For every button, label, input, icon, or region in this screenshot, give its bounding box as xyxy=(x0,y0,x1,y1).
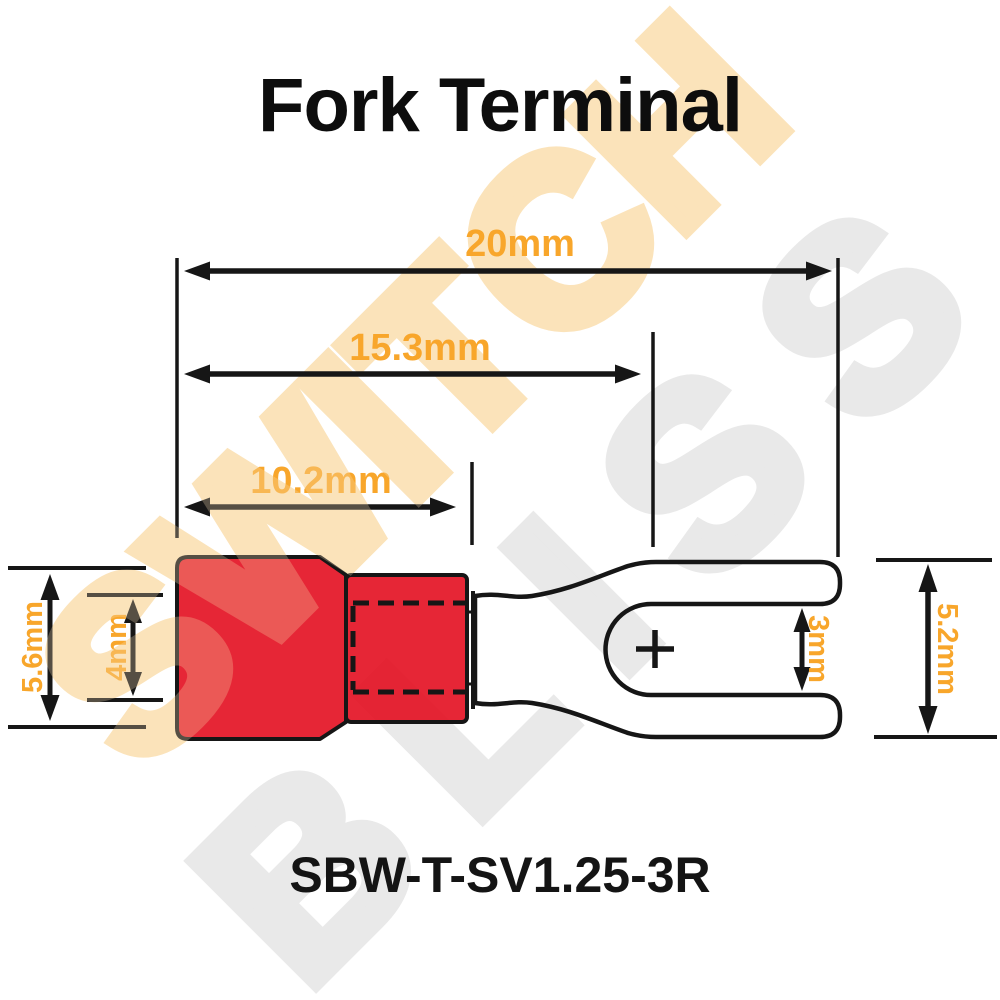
arrowhead-up-icon xyxy=(41,574,60,600)
insulation-sleeve xyxy=(177,557,467,739)
dim-insulation-length: 10.2mm xyxy=(184,460,472,545)
dim-fork-gap-label: 3mm xyxy=(802,615,834,683)
arrowhead-right-icon xyxy=(806,262,832,281)
arrowhead-right-icon xyxy=(430,498,456,517)
fork-blade xyxy=(467,562,840,737)
dim-fork-width-label: 5.2mm xyxy=(931,603,963,695)
dim-insulation-od-label: 5.6mm xyxy=(17,601,49,693)
arrowhead-left-icon xyxy=(184,262,210,281)
arrowhead-down-icon xyxy=(41,695,60,721)
arrowhead-right-icon xyxy=(615,365,641,384)
center-cross-icon xyxy=(636,630,674,668)
dim-wire-entry: 4mm xyxy=(87,595,163,700)
dim-fork-gap: 3mm xyxy=(794,608,834,691)
page-title: Fork Terminal xyxy=(0,62,1000,149)
dim-insulation-length-label: 10.2mm xyxy=(250,460,392,502)
dim-to-fork-notch-label: 15.3mm xyxy=(349,327,491,369)
crimp-barrel xyxy=(346,575,467,722)
dim-wire-entry-label: 4mm xyxy=(101,613,133,681)
arrowhead-down-icon xyxy=(919,706,938,734)
dim-fork-width: 5.2mm xyxy=(874,560,997,737)
arrowhead-left-icon xyxy=(184,498,210,517)
arrowhead-up-icon xyxy=(919,564,938,592)
dim-to-fork-notch: 15.3mm xyxy=(184,327,653,547)
dim-total-length-label: 20mm xyxy=(465,223,575,265)
part-number: SBW-T-SV1.25-3R xyxy=(0,846,1000,904)
insulation-sleeve-body xyxy=(177,557,346,739)
fork-terminal-spec-sheet: BLISS SWITCH 20mm 15.3mm xyxy=(0,0,1000,1000)
arrowhead-left-icon xyxy=(184,365,210,384)
